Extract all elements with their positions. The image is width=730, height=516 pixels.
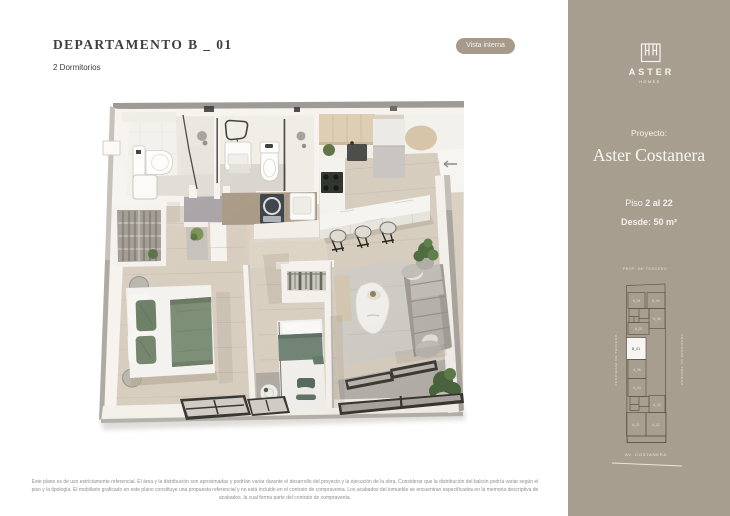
svg-text:HOMES: HOMES bbox=[639, 80, 660, 84]
svg-text:PROP. DE TERCERO: PROP. DE TERCERO bbox=[623, 267, 667, 271]
svg-text:B_02: B_02 bbox=[635, 327, 643, 331]
svg-text:A_01: A_01 bbox=[632, 423, 640, 427]
svg-text:Aster Costanera: Aster Costanera bbox=[593, 145, 705, 165]
svg-text:A_06: A_06 bbox=[633, 368, 641, 372]
svg-text:A_04: A_04 bbox=[633, 386, 641, 390]
svg-text:A_03: A_03 bbox=[653, 403, 661, 407]
svg-text:ASTER: ASTER bbox=[629, 67, 675, 77]
svg-text:B_04: B_04 bbox=[652, 299, 660, 303]
svg-text:PROPIEDAD DE TERCERO: PROPIEDAD DE TERCERO bbox=[680, 334, 684, 385]
svg-text:B_01: B_01 bbox=[632, 347, 640, 351]
svg-text:A_02: A_02 bbox=[652, 423, 660, 427]
svg-text:B_06: B_06 bbox=[653, 317, 661, 321]
svg-text:Desde: 50 m²: Desde: 50 m² bbox=[621, 217, 677, 227]
svg-text:Piso 2 al 22: Piso 2 al 22 bbox=[625, 198, 673, 208]
svg-text:PROPIEDAD DE TERCERO: PROPIEDAD DE TERCERO bbox=[614, 334, 618, 385]
svg-text:AV. COSTANERA: AV. COSTANERA bbox=[625, 452, 667, 457]
svg-text:Proyecto:: Proyecto: bbox=[631, 128, 667, 138]
svg-text:B_05: B_05 bbox=[633, 299, 641, 303]
